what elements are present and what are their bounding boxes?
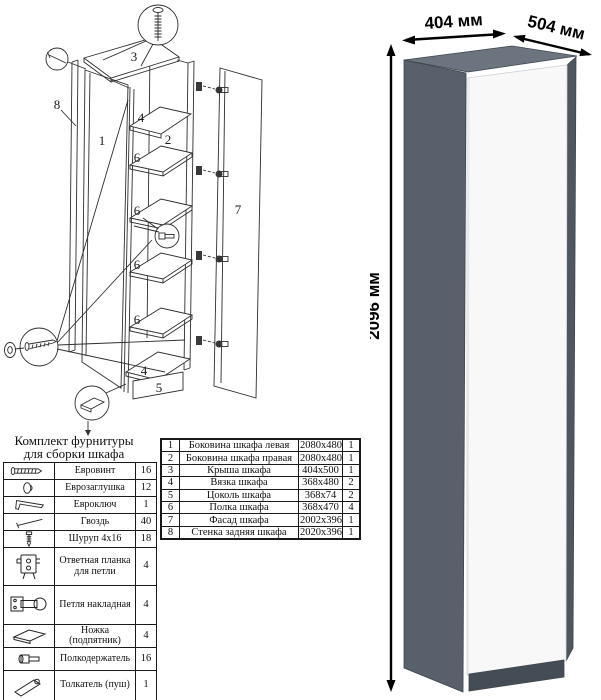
hardware-icon-cell <box>4 480 55 497</box>
part-size: 368x74 <box>299 489 343 501</box>
hardware-icon-cell <box>4 463 55 480</box>
hardware-icon-cell <box>4 671 55 700</box>
hardware-qty: 1 <box>136 671 157 700</box>
table-row: 5 Цоколь шкафа 368x74 2 <box>161 489 360 501</box>
foot-callout-icon <box>75 384 126 436</box>
part-size: 2020x396 <box>299 526 343 539</box>
part-qty: 2 <box>343 489 361 501</box>
cabinet-right-edge <box>566 57 576 661</box>
hardware-qty: 16 <box>136 648 157 671</box>
part-label-top-brace: 4 <box>138 110 145 125</box>
arrow-down-right-icon <box>579 48 592 56</box>
door-outline <box>214 68 262 398</box>
part-label-bottom-brace: 4 <box>141 363 148 378</box>
part-qty: 1 <box>343 452 361 464</box>
part-name: Крыша шкафа <box>180 464 299 476</box>
hardware-qty: 4 <box>136 625 157 648</box>
part-label-door: 7 <box>235 202 242 217</box>
arrow-up-icon <box>387 44 396 56</box>
part-qty: 2 <box>343 477 361 489</box>
part-label-left-side: 1 <box>99 133 106 148</box>
assembly-instruction-page: 3 8 1 2 4 6 6 6 6 4 5 7 Комплект фурниту… <box>0 0 601 700</box>
strike-plate-icon <box>7 550 51 584</box>
hardware-kit-title: Комплект фурнитуры для сборки шкафа <box>8 434 140 460</box>
hardware-qty: 12 <box>136 480 157 497</box>
table-row: 4 Вязка шкафа 368x480 2 <box>161 477 360 489</box>
hardware-icon-cell <box>4 548 55 586</box>
hardware-name: Петля накладная <box>55 586 136 625</box>
table-row: 6 Полка шкафа 368x470 4 <box>161 501 360 513</box>
table-row: 2 Боковина шкафа правая 2080x480 1 <box>161 452 360 464</box>
hardware-kit-table: Евровинт 16 Еврозаглушка 12 Евроключ 1 <box>3 462 157 700</box>
nail-icon <box>7 514 51 530</box>
part-label-right-side: 2 <box>165 132 172 147</box>
part-label-shelf-2: 6 <box>134 203 141 218</box>
part-qty: 1 <box>343 514 361 526</box>
table-row: Толкатель (пуш) 1 <box>4 671 157 700</box>
hardware-name: Гвоздь <box>55 514 136 531</box>
table-row: Петля накладная 4 <box>4 586 157 625</box>
arrow-down-icon <box>387 680 396 692</box>
part-name: Вязка шкафа <box>180 477 299 489</box>
hardware-name: Толкатель (пуш) <box>55 671 136 700</box>
hardware-name: Евровинт <box>55 463 136 480</box>
hardware-name: Ножка (подпятник) <box>55 625 136 648</box>
hardware-name: Евроключ <box>55 497 136 514</box>
hardware-name: Еврозаглушка <box>55 480 136 497</box>
part-size: 2002x396 <box>299 514 343 526</box>
cabinet-side-face <box>404 60 466 692</box>
width-label: 404 мм <box>424 10 483 33</box>
euro-screw-icon <box>7 463 51 479</box>
part-number: 7 <box>161 514 180 526</box>
part-label-shelf-1: 6 <box>134 150 141 165</box>
table-row: Полкодержатель 16 <box>4 648 157 671</box>
table-row: Евровинт 16 <box>4 463 157 480</box>
shelf-pin-icon <box>7 650 51 668</box>
hardware-name: Полкодержатель <box>55 648 136 671</box>
part-size: 404x500 <box>299 464 343 476</box>
arrow-right-icon <box>493 30 506 39</box>
part-size: 368x480 <box>299 477 343 489</box>
arrow-left-icon <box>402 36 415 45</box>
part-qty: 4 <box>343 501 361 513</box>
nail-callout-icon <box>46 48 86 70</box>
part-label-shelf-3: 6 <box>134 257 141 272</box>
hardware-icon-cell <box>4 531 55 548</box>
hardware-qty: 4 <box>136 548 157 586</box>
hardware-icon-cell <box>4 514 55 531</box>
part-number: 8 <box>161 526 180 539</box>
left-side-panel-outline <box>82 70 128 388</box>
hardware-name: Ответная планка для петли <box>55 548 136 586</box>
cabinet-door-front <box>467 65 567 675</box>
hardware-icon-cell <box>4 648 55 671</box>
height-dimension: 2096 мм <box>370 44 396 692</box>
part-number: 5 <box>161 489 180 501</box>
part-qty: 1 <box>343 439 361 452</box>
table-row: 8 Стенка задняя шкафа 2020x396 1 <box>161 526 360 539</box>
part-label-top-panel: 3 <box>131 49 138 64</box>
part-name: Стенка задняя шкафа <box>180 526 299 539</box>
part-label-plinth: 5 <box>156 380 163 395</box>
hardware-qty: 18 <box>136 531 157 548</box>
euro-cap-icon <box>7 480 51 496</box>
part-size: 2080x480 <box>299 452 343 464</box>
table-row: Еврозаглушка 12 <box>4 480 157 497</box>
table-row: 3 Крыша шкафа 404x500 1 <box>161 464 360 476</box>
arrow-up-left-icon <box>513 35 526 43</box>
part-name: Цоколь шкафа <box>180 489 299 501</box>
table-row: 7 Фасад шкафа 2002x396 1 <box>161 514 360 526</box>
table-row: Ответная планка для петли 4 <box>4 548 157 586</box>
part-name: Фасад шкафа <box>180 514 299 526</box>
push-latch-icon <box>7 674 51 698</box>
part-qty: 1 <box>343 526 361 539</box>
cabinet-render: 2096 мм 404 мм 504 мм <box>370 0 601 700</box>
table-row: Шуруп 4x16 18 <box>4 531 157 548</box>
depth-label: 504 мм <box>526 12 587 44</box>
hardware-qty: 4 <box>136 586 157 625</box>
part-label-back-panel: 8 <box>54 97 61 112</box>
part-size: 2080x480 <box>299 439 343 452</box>
hardware-qty: 16 <box>136 463 157 480</box>
part-qty: 1 <box>343 464 361 476</box>
part-label-shelf-4: 6 <box>134 312 141 327</box>
part-name: Боковина шкафа левая <box>180 439 299 452</box>
parts-table: 1 Боковина шкафа левая 2080x480 1 2 Боко… <box>160 438 361 540</box>
height-label: 2096 мм <box>370 272 383 340</box>
part-number: 6 <box>161 501 180 513</box>
part-number: 1 <box>161 439 180 452</box>
table-row: Ножка (подпятник) 4 <box>4 625 157 648</box>
foot-icon <box>7 626 51 646</box>
part-number: 4 <box>161 477 180 489</box>
hardware-icon-cell <box>4 586 55 625</box>
hardware-icon-cell <box>4 625 55 648</box>
table-row: 1 Боковина шкафа левая 2080x480 1 <box>161 439 360 452</box>
screw-icon <box>7 531 51 547</box>
part-size: 368x470 <box>299 501 343 513</box>
hardware-qty: 40 <box>136 514 157 531</box>
back-panel-outline <box>61 60 78 352</box>
part-name: Боковина шкафа правая <box>180 452 299 464</box>
euro-key-icon <box>7 497 51 513</box>
exploded-assembly-drawing: 3 8 1 2 4 6 6 6 6 4 5 7 <box>0 0 370 450</box>
part-number: 3 <box>161 464 180 476</box>
width-dimension: 404 мм <box>402 10 506 44</box>
table-row: Евроключ 1 <box>4 497 157 514</box>
hardware-icon-cell <box>4 497 55 514</box>
hinge-icon <box>7 587 51 623</box>
hardware-kit-title-line2: для сборки шкафа <box>8 447 140 460</box>
table-row: Гвоздь 40 <box>4 514 157 531</box>
part-name: Полка шкафа <box>180 501 299 513</box>
hardware-name: Шуруп 4x16 <box>55 531 136 548</box>
part-number: 2 <box>161 452 180 464</box>
hardware-qty: 1 <box>136 497 157 514</box>
